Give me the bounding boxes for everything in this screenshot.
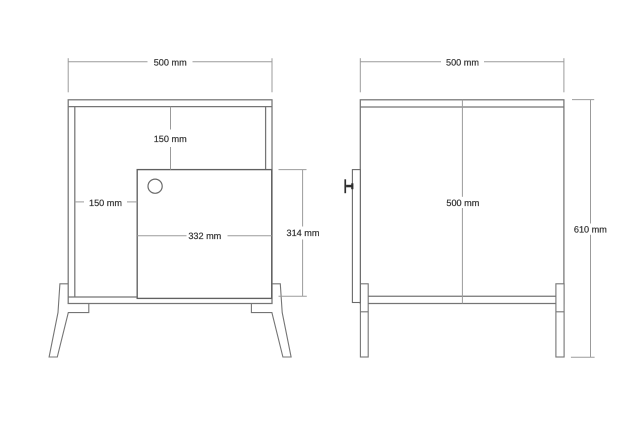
svg-text:150 mm: 150 mm [154, 134, 187, 144]
svg-text:500 mm: 500 mm [446, 198, 479, 208]
svg-text:610 mm: 610 mm [574, 225, 607, 235]
svg-text:150 mm: 150 mm [89, 198, 122, 208]
svg-text:500 mm: 500 mm [446, 58, 479, 68]
svg-text:314 mm: 314 mm [287, 228, 320, 238]
svg-text:500 mm: 500 mm [154, 58, 187, 68]
svg-text:332 mm: 332 mm [188, 231, 221, 241]
